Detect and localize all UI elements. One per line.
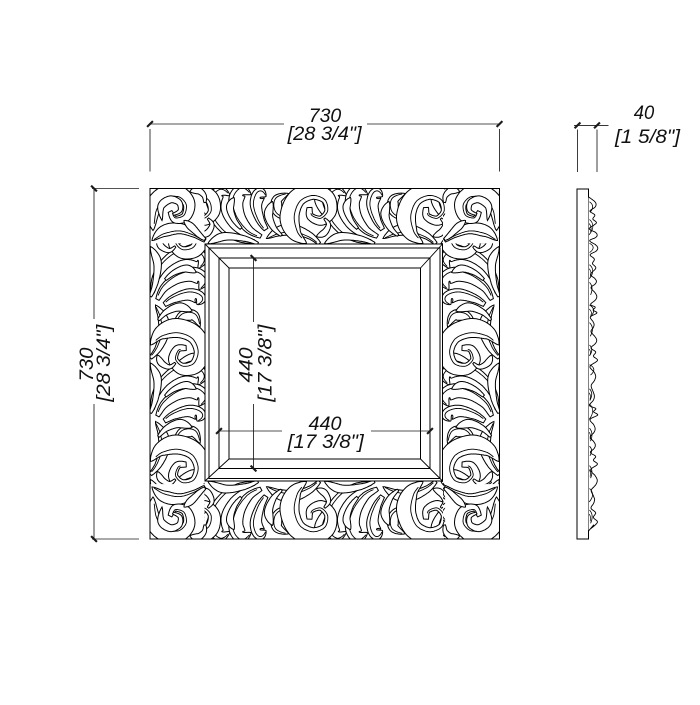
svg-text:440: 440 (237, 347, 258, 382)
svg-text:[28 3/4"]: [28 3/4"] (287, 124, 363, 145)
svg-text:[1 5/8"]: [1 5/8"] (614, 127, 681, 148)
svg-text:[28 3/4"]: [28 3/4"] (94, 324, 115, 403)
svg-text:[17 3/8"]: [17 3/8"] (287, 432, 365, 453)
svg-text:[17 3/8"]: [17 3/8"] (256, 324, 277, 403)
svg-text:40: 40 (634, 103, 655, 124)
